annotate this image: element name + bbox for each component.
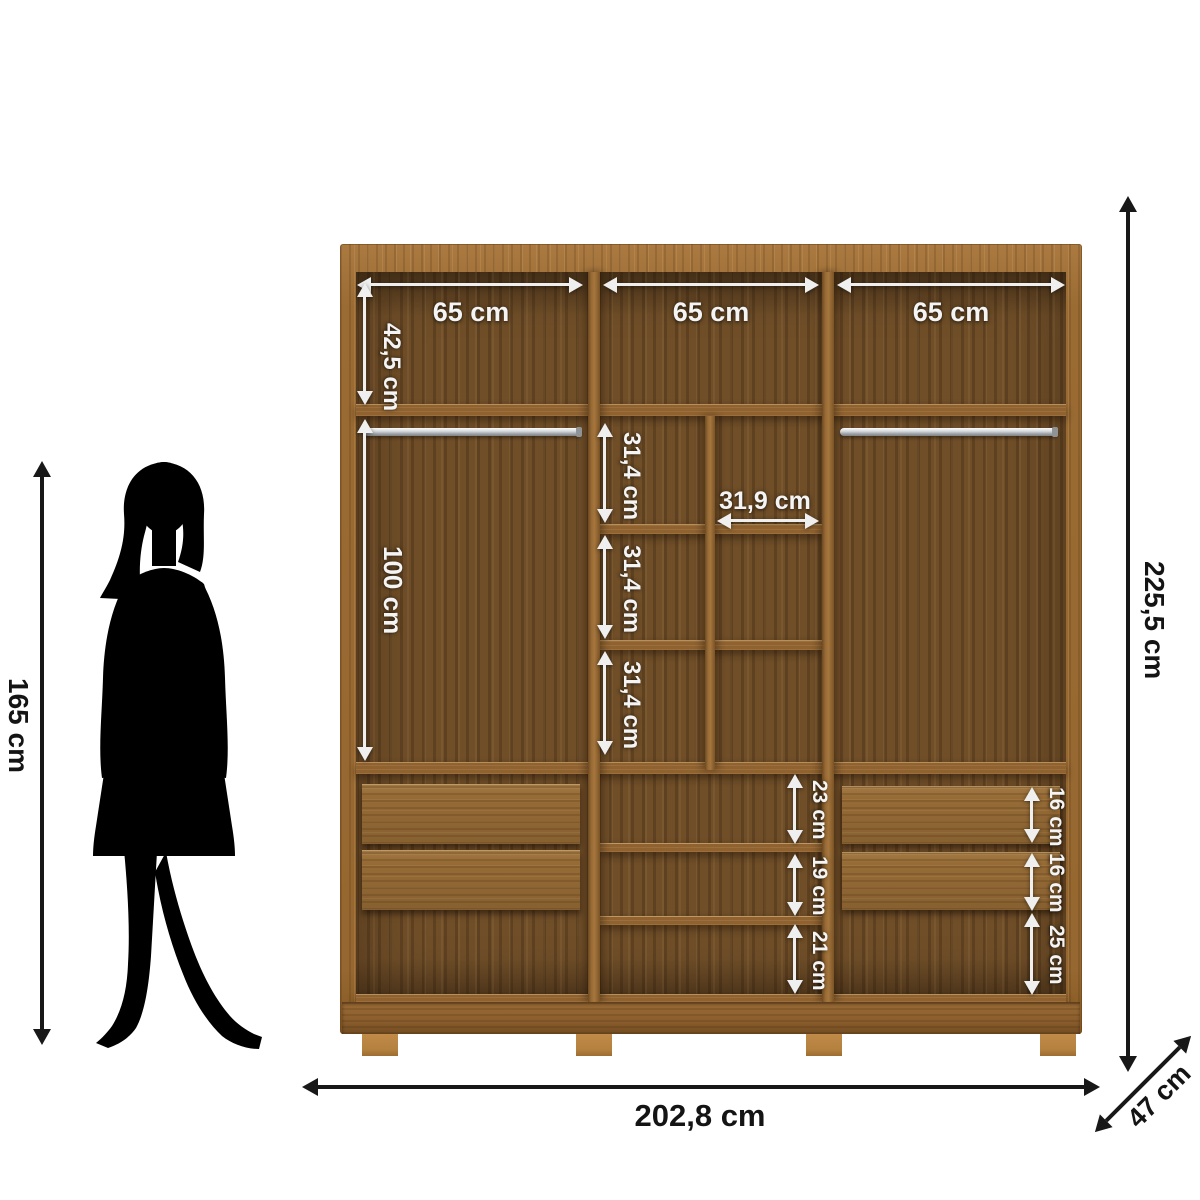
wardrobe-foot xyxy=(576,1034,612,1056)
person-height-arrow xyxy=(40,477,44,1029)
silhouette-neck xyxy=(152,526,176,566)
overall-height-label: 225,5 cm xyxy=(1138,528,1170,712)
wardrobe-foot xyxy=(362,1034,398,1056)
center-column-divider xyxy=(705,416,715,770)
cubby-width-arrow xyxy=(731,519,805,522)
right-drawer-label-2: 16 cm xyxy=(1044,853,1068,913)
overall-width-label: 202,8 cm xyxy=(500,1098,900,1134)
right-drawer-arrow-1 xyxy=(1030,801,1033,829)
right-open-label: 25 cm xyxy=(1044,915,1068,995)
overall-depth-label: 47 cm xyxy=(1121,1063,1192,1134)
hanging-height-arrow xyxy=(363,433,366,747)
section-width-arrow-right xyxy=(851,283,1051,286)
overall-height-arrow xyxy=(1126,212,1130,1056)
center-shelf-arrow-2 xyxy=(793,868,796,902)
cubby-height-arrow-2 xyxy=(603,549,606,625)
hanging-rod-right xyxy=(840,428,1058,436)
right-drawer-arrow-2 xyxy=(1030,867,1033,897)
top-shelf xyxy=(356,404,1066,416)
right-open-arrow xyxy=(1030,927,1033,981)
section-width-label-middle: 65 cm xyxy=(600,297,822,328)
center-shelf-arrow-1 xyxy=(793,788,796,830)
overall-width-arrow xyxy=(318,1085,1084,1089)
wardrobe-foot xyxy=(806,1034,842,1056)
cubby-height-arrow-3 xyxy=(603,665,606,741)
drawer-left-top xyxy=(362,784,580,844)
center-shelf-label-1: 23 cm xyxy=(807,775,831,845)
hanging-height-label: 100 cm xyxy=(377,505,408,675)
right-drawer-label-1: 16 cm xyxy=(1044,787,1068,845)
silhouette-right-leg xyxy=(155,852,262,1049)
person-height-label: 165 cm xyxy=(2,640,34,810)
cubby-height-label-1: 31,4 cm xyxy=(617,426,645,526)
cubby-height-label-3: 31,4 cm xyxy=(617,654,645,756)
center-lower-shelf xyxy=(600,843,822,852)
silhouette-left-leg xyxy=(96,850,157,1048)
section-width-arrow-left xyxy=(371,283,569,286)
top-shelf-height-arrow xyxy=(363,297,366,391)
bottom-panel xyxy=(356,994,1066,1002)
cubby-height-arrow-1 xyxy=(603,437,606,509)
section-width-arrow-middle xyxy=(617,283,805,286)
section-width-label-right: 65 cm xyxy=(834,297,1068,328)
center-shelf-label-3: 21 cm xyxy=(807,925,831,997)
center-shelf-arrow-3 xyxy=(793,938,796,980)
woman-silhouette xyxy=(60,452,270,1052)
center-shelf-label-2: 19 cm xyxy=(807,854,831,918)
cubby-height-label-2: 31,4 cm xyxy=(617,538,645,640)
wardrobe-dimension-diagram: 165 cm 65 cm 65 cm 65 cm 42,5 cm 100 cm … xyxy=(0,0,1200,1200)
baseboard xyxy=(342,1002,1080,1034)
drawer-left-bottom xyxy=(362,850,580,910)
top-shelf-height-label: 42,5 cm xyxy=(377,300,405,434)
wardrobe-foot xyxy=(1040,1034,1076,1056)
